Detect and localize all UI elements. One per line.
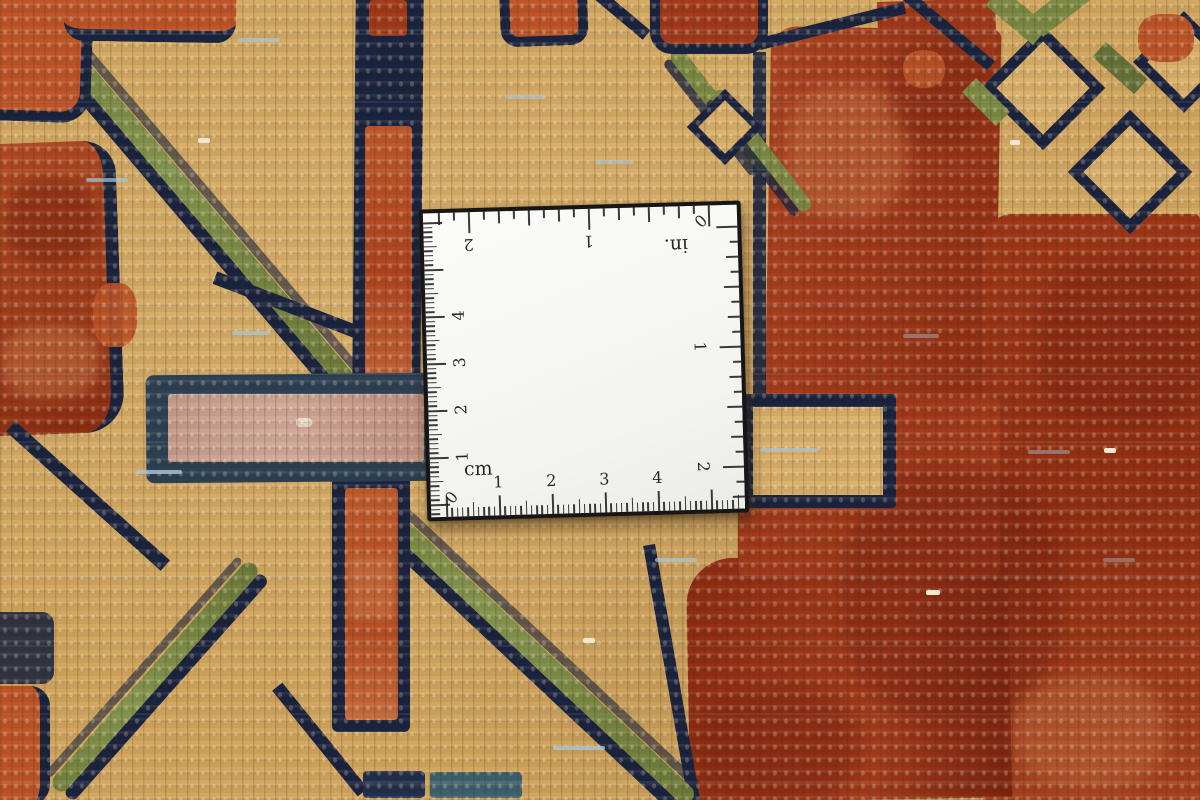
ruler-tick [431,509,440,511]
ruler-tick [428,382,437,384]
ruler-tick [424,255,433,257]
ruler-tick [426,330,435,332]
ruler-tick [706,501,708,510]
ruler-tick [647,502,649,511]
ruler-number-in-1: 1 [577,233,599,250]
ruler-tick [573,504,575,513]
ruler-tick [427,363,446,365]
ruler-tick [669,502,671,511]
ruler-number-cm-4: 4 [646,470,668,487]
ruler-tick [733,496,745,498]
ruler-tick [428,396,437,398]
ruler-tick [426,335,435,337]
ruler-tick [626,503,628,512]
ruler-tick [528,210,530,225]
ruler-tick [637,503,639,512]
ruler-tick [488,507,490,516]
ruler-tick [430,466,439,468]
ruler-tick [426,340,439,342]
ruler-tick [727,500,729,509]
ruler-inch-label: in. [664,235,689,255]
ruler-tick [578,499,580,513]
ruler-tick [428,387,441,389]
ruler-tick [429,420,438,422]
ruler-tick [467,507,469,516]
ruler-tick [423,236,432,238]
ruler-tick [648,207,650,222]
ruler-tick [429,438,438,440]
ruler-tick [427,349,436,351]
weft-dash [1028,450,1070,454]
ruler-cm-label: cm [464,460,493,480]
ruler-tick [478,507,480,516]
ruler-tick [716,226,737,228]
ruler-tick [679,501,681,510]
ruler-tick [425,293,438,295]
ruler-tick [525,501,527,515]
ruler-tick [453,213,455,221]
weft-dash [136,470,182,474]
ruler-number-cm-left-4: 4 [450,304,467,326]
ruler-tick [588,209,590,230]
ruler-tick [653,502,655,511]
ruler-tick [430,485,439,487]
ruler-tick [429,452,438,454]
ruler-tick [425,302,434,304]
ruler-tick [547,505,549,514]
ruler-tick [424,246,437,248]
ruler-tick [427,377,436,379]
ruler-number-in-2: 2 [457,236,479,253]
ruler-tick [483,507,485,516]
ruler-tick [616,503,618,512]
ruler-tick [425,307,434,309]
ruler-tick [426,321,435,323]
ruler-number-cm-3: 3 [593,471,615,488]
weft-dash [238,38,280,42]
ruler-tick [695,501,697,510]
ruler-tick [468,212,470,233]
ruler-face: 1234 1234 12 12 cm 0 in. 0 [423,205,745,518]
ruler-tick [428,401,437,403]
ruler-tick [431,499,440,501]
ruler-tick [498,211,500,223]
ruler-tick [426,316,445,318]
ruler-tick [424,241,433,243]
weft-dash [232,331,270,335]
ruler-tick [429,424,438,426]
ruler-tick [731,301,739,303]
ruler-tick [431,495,440,497]
ruler-tick [594,504,596,513]
ruler-tick [499,495,501,515]
ruler-tick [424,250,433,252]
weft-dash [595,160,631,164]
ruler-tick [510,506,512,515]
ruler-tick [430,476,439,478]
ruler-tick [483,212,485,220]
ruler-tick [515,506,517,515]
ruler-tick [730,241,738,243]
ruler-tick [733,361,741,363]
ruler-tick [557,505,559,514]
ruler-tick [563,505,565,514]
ruler-tick [690,501,692,510]
ruler-tick [663,207,665,215]
ruler-tick [423,232,432,234]
ruler-tick [568,504,570,513]
ruler-tick [430,471,439,473]
ruler-tick [429,429,438,431]
ruler-tick [425,297,434,299]
ruler-tick [543,210,545,218]
ruler-tick [425,279,434,281]
ruler-number-cm-2: 2 [540,473,562,490]
ruler-tick [573,209,575,217]
ruler-tick [642,502,644,511]
ruler-tick [472,502,474,516]
ruler-tick [494,507,496,516]
ruler-tick [731,271,739,273]
ruler-tick [732,500,734,509]
ruler-tick [426,344,435,346]
ruler-tick [663,502,665,511]
ruler-tick [678,206,680,218]
ruler-tick [424,260,433,262]
weft-dash [553,746,605,750]
ruler-number-in-right-1: 1 [691,336,708,358]
ruler-tick [727,406,742,408]
wool-fleck [583,638,595,643]
ruler-tick [589,504,591,513]
ruler-tick [431,490,440,492]
weft-dash [86,178,128,182]
ruler-tick [736,451,744,453]
ruler-tick [425,288,434,290]
wool-fleck [1010,140,1020,145]
ruler-tick [728,316,740,318]
weft-dash [505,95,545,99]
ruler-tick [732,331,740,333]
ruler-tick [610,503,612,512]
ruler-tick [425,274,434,276]
ruler-card: 1234 1234 12 12 cm 0 in. 0 [419,201,750,522]
ruler-tick [426,311,435,313]
ruler-tick [603,208,605,216]
ruler-tick [658,491,660,511]
ruler-tick [729,376,741,378]
ruler-tick [633,208,635,216]
ruler-tick [605,492,607,512]
ruler-tick [734,391,742,393]
ruler-tick [726,256,738,258]
ruler-tick [722,500,724,509]
ruler-tick [731,436,743,438]
ruler-tick [423,227,432,229]
ruler-tick [427,368,436,370]
ruler-tick [426,326,435,328]
ruler-tick [424,264,433,266]
ruler-tick [428,410,447,412]
ruler-tick [513,211,515,219]
ruler-tick [425,283,434,285]
ruler-tick [558,210,560,222]
ruler-tick [700,501,702,510]
ruler-number-cm-left-3: 3 [452,351,469,373]
ruler-tick [429,433,442,435]
ruler-tick [427,373,436,375]
ruler-tick [536,505,538,514]
ruler-tick [736,481,744,483]
ruler-tick [428,405,437,407]
ruler-tick [504,506,506,515]
ruler-tick [631,498,633,512]
ruler-number-cm-left-2: 2 [453,398,470,420]
ruler-tick [424,269,443,271]
weft-dash [760,448,818,452]
ruler-tick [427,358,436,360]
ruler-tick [531,505,533,514]
ruler-tick [451,508,453,517]
carpet-photo: 1234 1234 12 12 cm 0 in. 0 [0,0,1200,800]
ruler-tick [720,346,741,348]
weft-dash [903,334,939,338]
ruler-tick [618,208,620,220]
ruler-tick [584,504,586,513]
ruler-tick [430,457,449,459]
ruler-tick [716,500,718,509]
ruler-tick [520,506,522,515]
ruler-tick [430,462,439,464]
ruler-tick [724,286,739,288]
ruler-tick [600,504,602,513]
wool-fleck [926,590,940,595]
ruler-tick [541,505,543,514]
ruler-tick [430,480,443,482]
ruler-tick [429,448,438,450]
ruler-tick [462,507,464,516]
weft-dash [1103,558,1135,562]
wool-fleck [1104,448,1116,453]
ruler-tick [438,213,440,225]
ruler-tick [428,391,437,393]
weft-dash [655,558,697,562]
ruler-tick [735,421,743,423]
ruler-tick [429,443,438,445]
ruler-tick [427,354,436,356]
wool-fleck [198,138,210,143]
ruler-tick [552,494,554,514]
ruler-number-in-right-2: 2 [695,455,712,477]
ruler-tick [723,466,744,468]
ruler-tick [428,415,437,417]
ruler-tick [431,513,440,515]
ruler-tick [674,502,676,511]
ruler-tick [711,489,713,509]
ruler-tick [621,503,623,512]
ruler-tick [684,496,686,510]
ruler-tick [457,508,459,517]
